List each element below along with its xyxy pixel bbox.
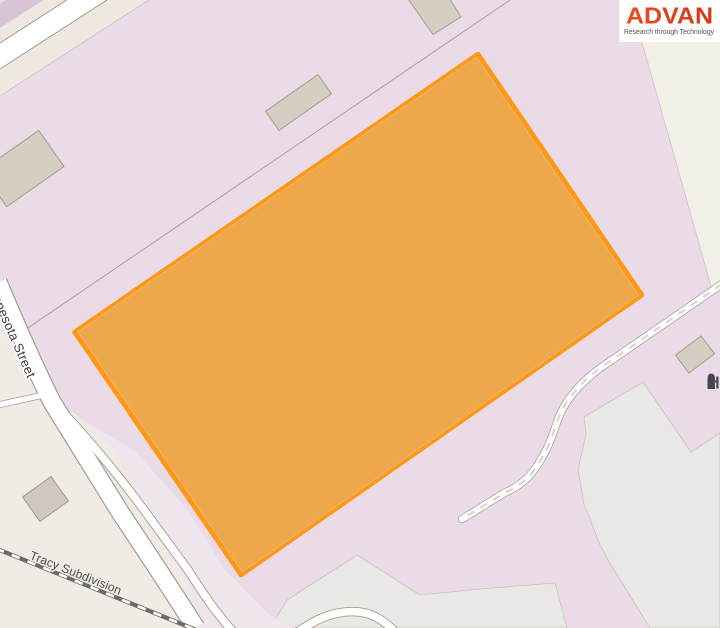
svg-text:ADVAN: ADVAN [626,3,713,29]
svg-text:Research through Technology: Research through Technology [624,27,714,36]
